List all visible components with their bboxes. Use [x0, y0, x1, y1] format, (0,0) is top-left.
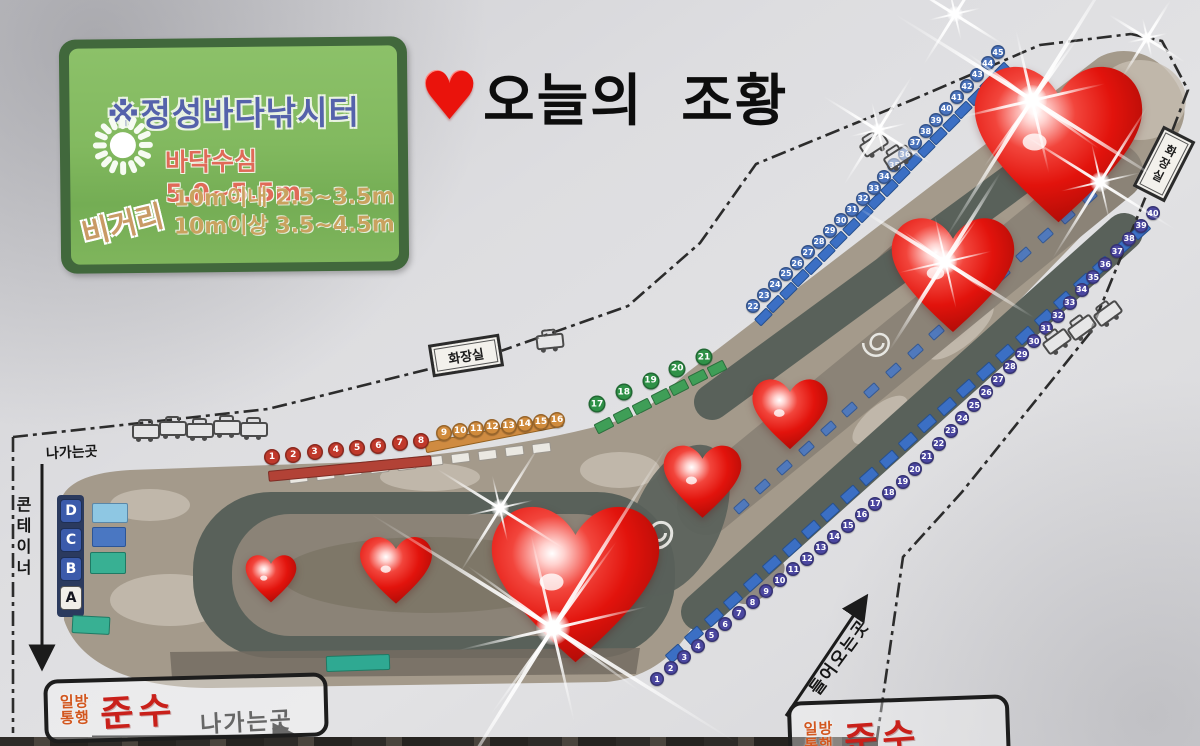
heart-icon [655, 436, 750, 523]
spot-number-purple: 22 [932, 437, 946, 451]
container-label: 콘테이너 [10, 496, 34, 616]
spot-number-red: 2 [285, 447, 301, 463]
dock-platform [72, 615, 111, 635]
catch-heart [956, 46, 1161, 235]
spot-number-purple: 6 [718, 617, 732, 631]
spot-number-red: 8 [413, 433, 429, 449]
spot-number-purple: 36 [1098, 257, 1112, 271]
dock-label-B: B [60, 557, 82, 581]
spot-number-blue: 31 [845, 203, 859, 217]
fishing-site-photo-map: ※정성바다낚시터 바닥수심 5.0~5.5m 비거리 10m이내 2.5~3.5… [0, 0, 1200, 746]
casting-distance-label: 비거리 [77, 191, 168, 253]
spot-number-green: 18 [615, 384, 632, 401]
dock-label-A: A [60, 586, 82, 610]
spot-number-purple: 30 [1027, 334, 1041, 348]
spot-number-blue: 30 [834, 213, 848, 227]
spot-number-purple: 23 [944, 424, 958, 438]
spot-number-blue: 38 [919, 124, 933, 138]
spot-number-purple: 33 [1063, 296, 1077, 310]
one-way-word-2: 통행 [804, 737, 834, 746]
spot-number-blue: 22 [746, 299, 760, 313]
spot-number-orange: 15 [533, 414, 549, 430]
comply-word: 준수 [842, 707, 922, 746]
spot-number-blue: 40 [939, 102, 953, 116]
spot-number-orange: 10 [452, 423, 468, 439]
spot-number-blue: 32 [856, 192, 870, 206]
spot-number-blue: 25 [779, 267, 793, 281]
heart-icon: ♥ [420, 64, 479, 130]
spot-number-purple: 17 [868, 497, 882, 511]
spot-number-purple: 35 [1086, 270, 1100, 284]
one-way-word-2: 통행 [60, 711, 90, 728]
spot-number-blue: 28 [812, 235, 826, 249]
heart-icon [240, 549, 302, 606]
spot-number-blue: 34 [877, 170, 891, 184]
spot-number-purple: 9 [759, 584, 773, 598]
spot-number-purple: 24 [955, 411, 969, 425]
spot-number-purple: 3 [677, 650, 691, 664]
dock-label-C: C [60, 528, 82, 552]
dock-label-D: D [60, 499, 82, 523]
spot-number-green: 21 [696, 349, 713, 366]
range-line-2: 10m이상 3.5~4.5m [174, 211, 395, 241]
catch-heart [655, 436, 750, 523]
spot-number-purple: 4 [691, 639, 705, 653]
car-icon [132, 424, 160, 439]
dock-platform [92, 527, 126, 547]
spot-number-purple: 21 [920, 450, 934, 464]
catch-heart [352, 528, 440, 609]
spot-number-purple: 7 [732, 606, 746, 620]
spot-number-orange: 14 [517, 416, 533, 432]
spot-number-orange: 16 [549, 412, 565, 428]
spot-number-purple: 5 [705, 628, 719, 642]
spot-number-blue: 26 [790, 256, 804, 270]
spot-number-blue: 29 [823, 224, 837, 238]
car-icon [213, 420, 241, 435]
spot-number-purple: 27 [991, 373, 1005, 387]
car-icon [535, 333, 564, 351]
spot-number-purple: 8 [746, 595, 760, 609]
dock-platform [92, 503, 128, 523]
heart-icon [473, 486, 678, 675]
heart-icon [956, 46, 1161, 235]
page-title-text: 오늘의 조황 [483, 56, 788, 137]
spot-number-purple: 16 [855, 508, 869, 522]
catch-heart [240, 549, 302, 606]
spot-number-purple: 10 [773, 573, 787, 587]
spot-number-red: 6 [370, 438, 386, 454]
spot-number-purple: 20 [908, 462, 922, 476]
spot-number-blue: 37 [908, 136, 922, 150]
range-line-1: 10m이내 2.5~3.5m [173, 183, 394, 213]
fishing-platform [477, 449, 497, 461]
heart-icon [744, 370, 836, 455]
spot-number-orange: 9 [436, 425, 452, 441]
spot-number-orange: 12 [484, 419, 500, 435]
dock-platform [90, 552, 126, 574]
comply-word: 준수 [98, 681, 177, 738]
spot-number-purple: 29 [1015, 347, 1029, 361]
spot-number-red: 1 [264, 449, 280, 465]
spot-number-red: 4 [328, 442, 344, 458]
site-info-sign: ※정성바다낚시터 바닥수심 5.0~5.5m 비거리 10m이내 2.5~3.5… [59, 36, 409, 274]
spot-number-purple: 18 [882, 486, 896, 500]
spot-number-purple: 37 [1110, 244, 1124, 258]
car-icon [159, 421, 187, 436]
dock-platform [326, 654, 391, 672]
car-icon [240, 422, 268, 437]
spot-number-blue: 33 [867, 181, 881, 195]
exit-top-label: 나가는곳 [46, 441, 99, 464]
spot-number-purple: 26 [979, 385, 993, 399]
spot-number-green: 17 [589, 396, 606, 413]
catch-heart [744, 370, 836, 455]
spot-number-purple: 14 [827, 530, 841, 544]
spot-number-orange: 11 [468, 421, 484, 437]
one-way-stamp: 일방 통행 준수 [787, 694, 1011, 746]
spot-number-blue: 24 [768, 278, 782, 292]
spot-number-purple: 12 [800, 552, 814, 566]
spot-number-purple: 19 [896, 475, 910, 489]
one-way-stamp: 일방 통행 준수 [43, 672, 329, 743]
sun-icon [92, 114, 155, 177]
site-info-sign-panel: ※정성바다낚시터 바닥수심 5.0~5.5m 비거리 10m이내 2.5~3.5… [69, 45, 399, 264]
spot-number-purple: 11 [786, 562, 800, 576]
spot-number-red: 7 [392, 435, 408, 451]
spot-number-purple: 25 [967, 398, 981, 412]
spot-number-red: 3 [307, 444, 323, 460]
spot-number-green: 19 [642, 372, 659, 389]
spot-number-orange: 13 [501, 418, 517, 434]
car-icon [186, 423, 214, 438]
spot-number-purple: 28 [1003, 360, 1017, 374]
spot-number-red: 5 [349, 440, 365, 456]
spot-number-purple: 34 [1075, 283, 1089, 297]
page-title: ♥ 오늘의 조황 [420, 56, 788, 137]
spot-number-purple: 13 [814, 541, 828, 555]
catch-heart [473, 486, 678, 675]
spot-number-green: 20 [669, 360, 686, 377]
spot-number-blue: 23 [757, 288, 771, 302]
spot-number-purple: 32 [1051, 309, 1065, 323]
spot-number-blue: 27 [801, 245, 815, 259]
spot-number-blue: 39 [929, 113, 943, 127]
spot-number-purple: 15 [841, 519, 855, 533]
heart-icon [352, 528, 440, 609]
